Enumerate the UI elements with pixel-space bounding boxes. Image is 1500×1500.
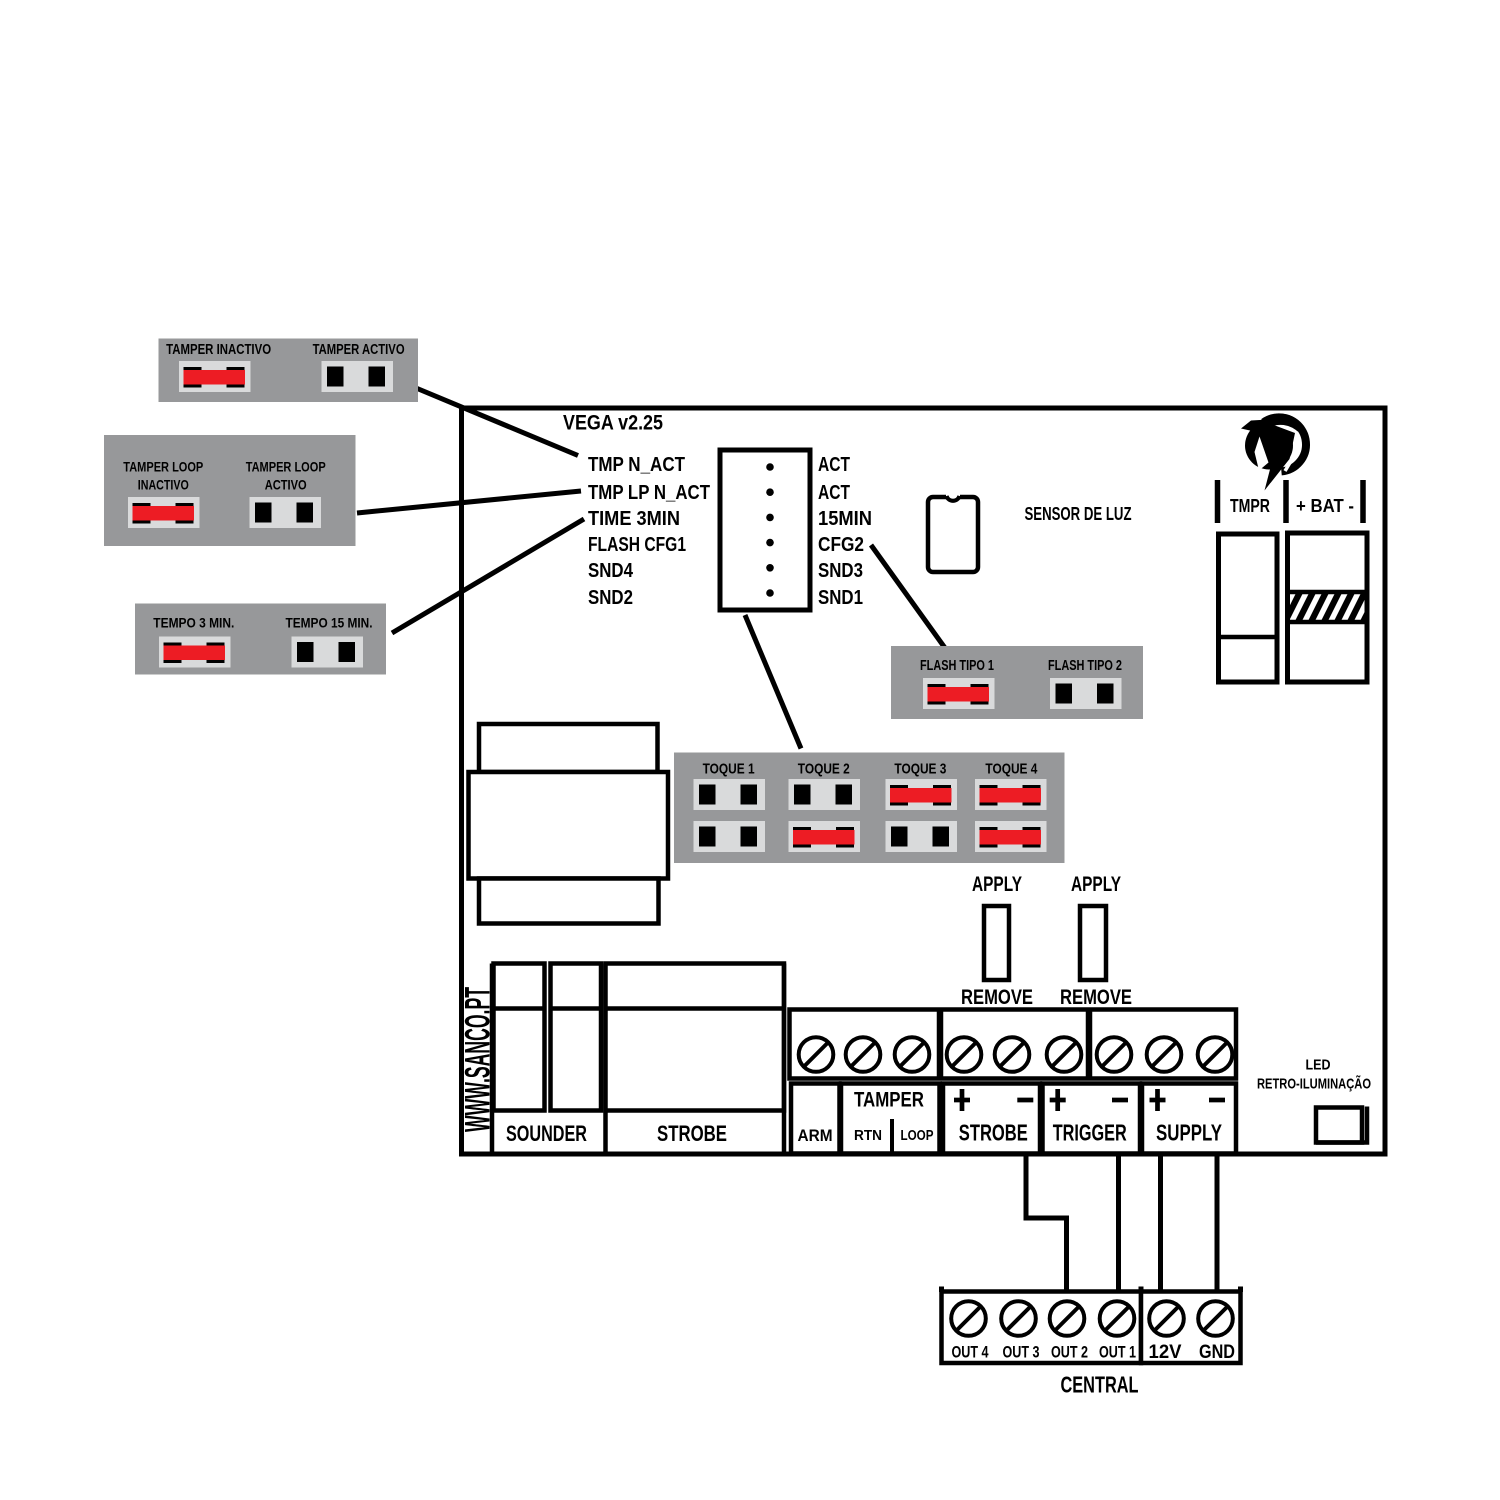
svg-text:INACTIVO: INACTIVO xyxy=(138,477,189,492)
svg-text:+ BAT -: + BAT - xyxy=(1296,495,1354,516)
svg-text:TRIGGER: TRIGGER xyxy=(1053,1120,1127,1146)
svg-text:SND3: SND3 xyxy=(818,560,863,582)
svg-text:SND1: SND1 xyxy=(818,587,863,609)
svg-text:SUPPLY: SUPPLY xyxy=(1156,1120,1222,1146)
svg-text:TAMPER LOOP: TAMPER LOOP xyxy=(123,460,203,475)
svg-text:SND4: SND4 xyxy=(588,560,634,582)
svg-text:TEMPO 15 MIN.: TEMPO 15 MIN. xyxy=(286,615,373,630)
svg-text:STROBE: STROBE xyxy=(959,1120,1028,1146)
svg-text:LED: LED xyxy=(1306,1057,1331,1074)
svg-text:FLASH CFG1: FLASH CFG1 xyxy=(588,534,686,556)
svg-text:APPLY: APPLY xyxy=(972,873,1022,896)
svg-text:TOQUE 3: TOQUE 3 xyxy=(894,761,946,777)
svg-text:OUT 1: OUT 1 xyxy=(1099,1343,1136,1362)
svg-text:TAMPER: TAMPER xyxy=(854,1089,924,1112)
svg-text:VEGA v2.25: VEGA v2.25 xyxy=(563,412,663,435)
svg-text:APPLY: APPLY xyxy=(1071,873,1121,896)
svg-text:TOQUE 2: TOQUE 2 xyxy=(798,761,850,777)
svg-text:GND: GND xyxy=(1199,1341,1235,1363)
svg-text:ACT: ACT xyxy=(818,454,850,476)
svg-text:15MIN: 15MIN xyxy=(818,508,872,530)
svg-text:CFG2: CFG2 xyxy=(818,534,864,556)
svg-text:TMP LP N_ACT: TMP LP N_ACT xyxy=(588,482,710,504)
svg-text:TMPR: TMPR xyxy=(1230,495,1270,516)
svg-text:TMP N_ACT: TMP N_ACT xyxy=(588,454,685,476)
svg-text:TOQUE 1: TOQUE 1 xyxy=(703,761,755,777)
svg-text:TOQUE 4: TOQUE 4 xyxy=(985,761,1038,777)
svg-text:TAMPER LOOP: TAMPER LOOP xyxy=(246,460,326,475)
svg-text:ACT: ACT xyxy=(818,482,850,504)
svg-text:TAMPER ACTIVO: TAMPER ACTIVO xyxy=(313,342,405,358)
svg-text:WWW.SANCO.PT: WWW.SANCO.PT xyxy=(459,987,498,1132)
svg-text:REMOVE: REMOVE xyxy=(961,986,1033,1009)
svg-text:TAMPER INACTIVO: TAMPER INACTIVO xyxy=(166,342,271,358)
svg-text:LOOP: LOOP xyxy=(901,1128,934,1144)
svg-text:FLASH TIPO 1: FLASH TIPO 1 xyxy=(920,658,994,674)
svg-text:STROBE: STROBE xyxy=(657,1121,727,1146)
svg-text:RETRO-ILUMINAÇÃO: RETRO-ILUMINAÇÃO xyxy=(1257,1075,1371,1093)
svg-text:SOUNDER: SOUNDER xyxy=(506,1121,587,1146)
svg-text:OUT 4: OUT 4 xyxy=(952,1343,989,1362)
svg-text:FLASH TIPO 2: FLASH TIPO 2 xyxy=(1048,658,1122,674)
svg-text:SND2: SND2 xyxy=(588,587,633,609)
svg-text:RTN: RTN xyxy=(854,1128,882,1144)
svg-text:SENSOR DE LUZ: SENSOR DE LUZ xyxy=(1025,504,1132,524)
svg-text:REMOVE: REMOVE xyxy=(1060,986,1132,1009)
svg-text:OUT 2: OUT 2 xyxy=(1051,1343,1088,1362)
svg-text:12V: 12V xyxy=(1149,1341,1182,1363)
svg-text:CENTRAL: CENTRAL xyxy=(1061,1372,1139,1398)
svg-text:TIME 3MIN: TIME 3MIN xyxy=(588,508,680,530)
svg-text:TEMPO 3 MIN.: TEMPO 3 MIN. xyxy=(153,615,234,630)
svg-text:OUT 3: OUT 3 xyxy=(1003,1343,1040,1362)
svg-text:ARM: ARM xyxy=(798,1126,833,1145)
svg-text:ACTIVO: ACTIVO xyxy=(265,477,307,492)
